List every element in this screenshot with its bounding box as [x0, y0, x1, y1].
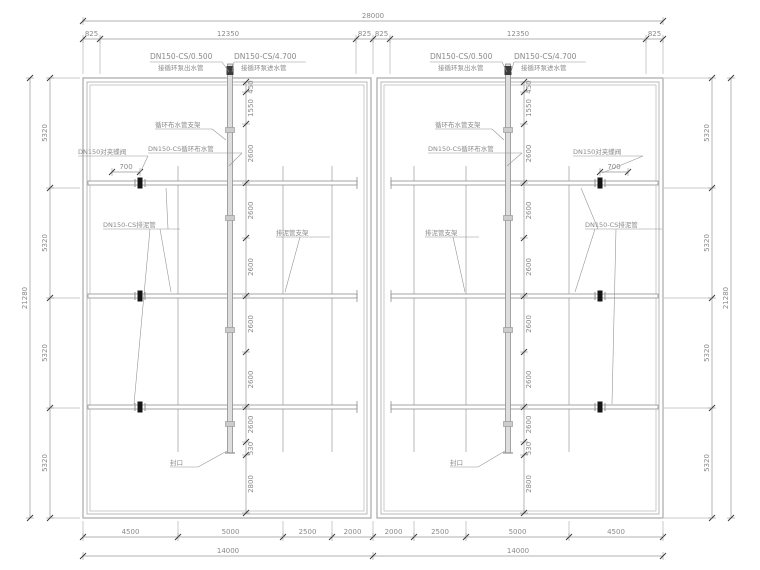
- pipe-support-icon: [504, 128, 513, 133]
- note-outlet-left-text: 接循环泵出水管: [158, 63, 204, 72]
- circ-pipe-left-text: DN150-CS循环布水管: [148, 144, 214, 153]
- dim-value: 2600: [247, 371, 255, 389]
- dim-value: 700: [119, 163, 132, 171]
- dim-value: 2600: [525, 202, 533, 220]
- circulation-pipe: [506, 64, 511, 453]
- circ-support-left-text: 循环布水管支架: [155, 120, 201, 129]
- dim-value: 28000: [362, 12, 384, 20]
- dim-value: 1550: [247, 99, 255, 117]
- dim-left-outer: 21280: [21, 75, 34, 521]
- dim-value: 2600: [525, 145, 533, 163]
- pipe-tag-inlet-left-text: DN150-CS/4.700: [234, 52, 297, 61]
- dim-value: 14000: [507, 547, 529, 555]
- sludge-support-left-text: 排泥管支架: [276, 228, 309, 237]
- drawing-sheet: 2800082512350825825123508254500500025002…: [0, 0, 760, 570]
- leader-line: [134, 229, 150, 404]
- dim-value: 4500: [607, 528, 625, 536]
- pipe-tag-inlet-right-text: DN150-CS/4.700: [514, 52, 577, 61]
- pipe-tag-outlet-left-text: DN150-CS/0.500: [150, 52, 213, 61]
- dim-valve-right: 700: [597, 163, 631, 176]
- dim-left-chain: 5320532053205320: [41, 75, 80, 521]
- note-outlet-right-text: 接循环泵出水管: [438, 63, 484, 72]
- piping-plan-canvas: 2800082512350825825123508254500500025002…: [0, 0, 760, 570]
- dim-value: 1550: [525, 99, 533, 117]
- dim-value: 530: [247, 442, 255, 455]
- note-outlet-right: 接循环泵出水管: [438, 63, 484, 72]
- dim-value: 530: [525, 442, 533, 455]
- leader-line: [160, 229, 171, 292]
- dim-value: 5320: [703, 124, 711, 142]
- leader-line: [198, 451, 227, 467]
- dim-value: 5320: [41, 234, 49, 252]
- dim-value: 2600: [525, 258, 533, 276]
- leader-line: [140, 156, 148, 173]
- sludge-pipe-row: [88, 405, 357, 409]
- note-inlet-right-text: 接循环泵进水管: [521, 63, 567, 72]
- dim-value: 5320: [703, 234, 711, 252]
- dim-value: 2600: [525, 315, 533, 333]
- dim-value: 825: [358, 30, 371, 38]
- dim-value: 5000: [222, 528, 240, 536]
- dim-bottom-total: 1400014000: [80, 547, 666, 560]
- pump-connection-fitting-icon: [505, 66, 512, 75]
- dim-value: 2600: [247, 202, 255, 220]
- valve-label-left-text: DN150对夹蝶阀: [78, 147, 126, 156]
- valve-label-right-text: DN150对夹蝶阀: [573, 147, 621, 156]
- pipe-support-icon: [226, 422, 235, 427]
- note-inlet-right: 接循环泵进水管: [521, 63, 567, 72]
- cap-label-left-text: 封口: [170, 458, 183, 467]
- dim-value: 2500: [431, 528, 449, 536]
- dim-value: 2600: [247, 258, 255, 276]
- pipe-support-icon: [226, 216, 235, 221]
- pipe-support-icon: [226, 328, 235, 333]
- dim-valve-left: 700: [109, 163, 143, 176]
- cap-label-left: 封口: [170, 451, 227, 467]
- dim-value: 2500: [299, 528, 317, 536]
- dim-value: 5320: [41, 454, 49, 472]
- dim-value: 2600: [525, 416, 533, 434]
- sludge-pipe-right-text: DN150-CS排泥管: [585, 220, 638, 229]
- pipe-support-icon: [504, 216, 513, 221]
- dim-value: 21280: [21, 287, 29, 309]
- sludge-support-right-text: 排泥管支架: [425, 228, 458, 237]
- dim-value: 2600: [525, 371, 533, 389]
- dim-value: 14000: [217, 547, 239, 555]
- dim-value: 21280: [722, 287, 730, 309]
- dim-value: 450: [525, 80, 533, 93]
- dim-bottom-chain: 45005000250020002000250050004500: [80, 521, 666, 541]
- leader-line: [453, 237, 465, 292]
- cap-label-right: 封口: [450, 451, 505, 467]
- pipe-support-icon: [504, 328, 513, 333]
- leader-line: [212, 129, 226, 140]
- dim-value: 12350: [507, 30, 529, 38]
- pipe-tag-outlet-right-text: DN150-CS/0.500: [430, 52, 493, 61]
- circulation-pipe: [228, 64, 233, 453]
- dim-value: 5320: [703, 454, 711, 472]
- dim-value: 2800: [247, 475, 255, 493]
- dim-value: 825: [85, 30, 98, 38]
- leader-line: [492, 129, 504, 140]
- leader-line: [166, 188, 168, 229]
- pipe-support-icon: [504, 422, 513, 427]
- dim-value: 5320: [41, 344, 49, 362]
- dim-value: 5320: [703, 344, 711, 362]
- dim-value: 2600: [247, 145, 255, 163]
- dim-value: 5320: [41, 124, 49, 142]
- cap-label-right-text: 封口: [450, 458, 463, 467]
- dim-value: 825: [375, 30, 388, 38]
- dim-value: 2600: [247, 416, 255, 434]
- sludge-support-right: 排泥管支架: [425, 228, 479, 292]
- dim-top-total: 28000: [80, 12, 666, 25]
- sludge-pipe-left-text: DN150-CS排泥管: [103, 220, 156, 229]
- dim-value: 2800: [525, 475, 533, 493]
- dim-value: 825: [648, 30, 661, 38]
- note-outlet-left: 接循环泵出水管: [158, 63, 204, 72]
- dim-value: 2600: [247, 315, 255, 333]
- valve-label-left: DN150对夹蝶阀: [78, 147, 148, 173]
- dim-value: 12350: [217, 30, 239, 38]
- sludge-pipe-row: [88, 294, 357, 298]
- note-inlet-left-text: 接循环泵进水管: [241, 63, 287, 72]
- sludge-pipe-row: [88, 181, 357, 185]
- leader-line: [285, 237, 300, 292]
- circ-support-right: 循环布水管支架: [435, 120, 504, 140]
- dim-right-chain: 5320532053205320: [664, 75, 716, 521]
- leader-line: [612, 229, 616, 404]
- leader-line: [478, 451, 505, 467]
- circ-support-left: 循环布水管支架: [155, 120, 226, 140]
- note-inlet-left: 接循环泵进水管: [241, 63, 287, 72]
- circ-support-right-text: 循环布水管支架: [435, 120, 481, 129]
- leader-line: [575, 229, 595, 292]
- dim-value: 5000: [509, 528, 527, 536]
- circ-pipe-right-text: DN150-CS循环布水管: [428, 144, 494, 153]
- pipe-support-icon: [226, 128, 235, 133]
- sludge-support-left: 排泥管支架: [276, 228, 330, 292]
- dim-value: 2000: [385, 528, 403, 536]
- dim-value: 4500: [122, 528, 140, 536]
- dim-value: 450: [247, 80, 255, 93]
- pipework-left: [88, 64, 357, 453]
- dim-value: 2000: [344, 528, 362, 536]
- dim-right-outer: 21280: [722, 75, 735, 521]
